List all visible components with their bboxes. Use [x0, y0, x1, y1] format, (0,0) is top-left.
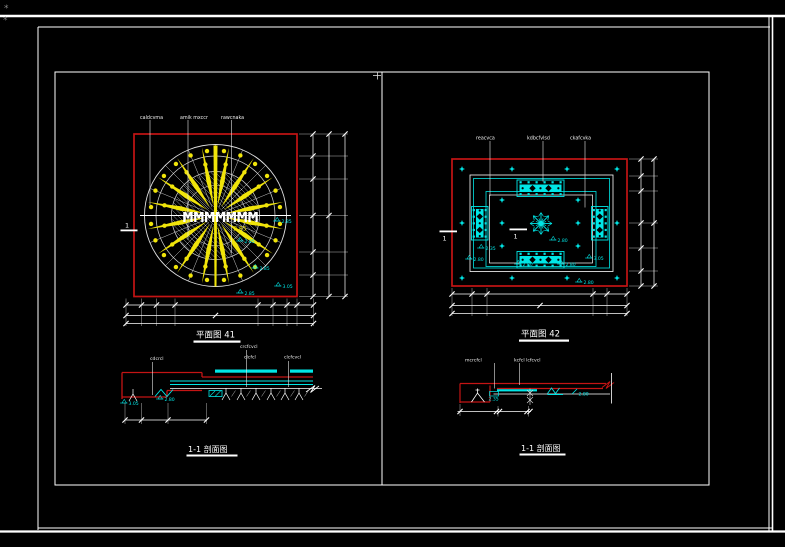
ornament-dot	[522, 187, 524, 189]
ceiling-dot	[184, 257, 188, 261]
ornament-dot	[605, 236, 607, 238]
section-b-panel-bar	[497, 389, 537, 391]
material-callout: caldcvma	[140, 115, 163, 121]
ceiling-dot	[170, 184, 174, 188]
star-mark	[564, 275, 570, 281]
material-callout: kdbcfvlsd	[527, 136, 550, 142]
ornament-dot	[560, 253, 562, 255]
elevation-triangle	[122, 399, 127, 403]
elevation-value: 2.85	[245, 239, 255, 245]
ceiling-dot	[162, 253, 166, 257]
ornament-dot	[520, 193, 522, 195]
elevation-value: 2.85	[245, 291, 255, 297]
elevation-value: 2.80	[558, 238, 568, 244]
hatch-slash	[247, 391, 251, 397]
ornament-dot	[485, 216, 487, 218]
ornament-dot	[473, 222, 475, 224]
ceiling-dot	[257, 184, 261, 188]
star-mark	[614, 275, 620, 281]
ceiling-dot	[278, 205, 282, 209]
corner-artifact-mark: *	[3, 16, 8, 26]
section-a-title-underline	[187, 455, 238, 457]
ceiling-dot	[149, 222, 153, 226]
ornament-dot	[593, 229, 595, 231]
ceiling-dot	[273, 188, 277, 192]
ornament-dot	[605, 216, 607, 218]
hanger-symbol	[222, 388, 230, 400]
star-mark	[614, 166, 620, 172]
ceiling-dot	[265, 253, 269, 257]
elevation-triangle	[479, 244, 484, 248]
elevation-triangle	[587, 254, 592, 258]
ceiling-dot	[162, 203, 166, 207]
cut-marker-label: 1	[514, 233, 518, 241]
ornament-dot	[560, 181, 562, 183]
cad-drawing-canvas: * * 2.852.852.853.052.85 caldcvma amik m…	[0, 0, 785, 547]
ornament-dot	[520, 265, 522, 267]
elevation-triangle	[276, 282, 281, 286]
ornament-dot	[557, 259, 559, 261]
section-a-title: 1-1 剖面图	[188, 444, 228, 454]
ceiling-dot	[162, 174, 166, 178]
ornament-dot	[599, 222, 601, 224]
ceiling-dot	[273, 238, 277, 242]
section-b-generated: 2.352.80	[457, 392, 588, 417]
elevation-value: 2.80	[165, 397, 175, 403]
section-b-hanger	[472, 389, 485, 403]
material-callout: cdcrcl	[150, 356, 164, 362]
star-mark	[614, 220, 620, 226]
plan-a-center-note: 2.85	[233, 226, 247, 233]
plan-b-title: 平面图 42	[521, 330, 560, 340]
cut-marker-bar	[121, 230, 138, 232]
elevation-value: 3.05	[594, 256, 604, 262]
material-callout: clcfcl	[244, 355, 256, 361]
elevation-value: 2.35	[489, 397, 499, 403]
ceiling-dot	[205, 278, 209, 282]
elevation-triangle	[238, 289, 243, 293]
ornament-dot	[560, 265, 562, 267]
material-callout: ckafcvka	[570, 136, 591, 142]
ornament-dot	[536, 253, 538, 255]
ornament-dot	[536, 265, 538, 267]
ornament-dot	[473, 209, 475, 211]
ornament-dot	[560, 193, 562, 195]
ornament-dot	[536, 181, 538, 183]
ornament-dot	[539, 187, 541, 189]
star-mark	[459, 220, 465, 226]
ceiling-dot	[203, 162, 207, 166]
ceiling-dot	[264, 203, 268, 207]
section-a-red-profile	[122, 373, 313, 400]
star-mark	[499, 220, 505, 226]
elevation-value: 2.35	[486, 246, 496, 252]
ceiling-dot	[264, 223, 268, 227]
hanger-symbol	[267, 388, 275, 400]
page-border-frame: * *	[0, 4, 785, 532]
ornament-dot	[485, 209, 487, 211]
ornament-dot	[552, 253, 554, 255]
section-a-hatch	[210, 391, 221, 397]
ornament-dot	[479, 235, 481, 237]
material-callout: crcfcvcl	[240, 344, 258, 350]
hanger-symbol	[281, 388, 289, 400]
plan-a-title-underline	[194, 341, 241, 343]
star-mark	[459, 275, 465, 281]
ornament-dot	[528, 193, 530, 195]
elevation-value: 3.05	[129, 401, 139, 407]
ceiling-dot	[242, 257, 246, 261]
cut-marker-bar	[440, 231, 458, 233]
ornament-dot	[599, 235, 601, 237]
elevation-triangle	[551, 236, 556, 240]
ceiling-dot	[223, 264, 227, 268]
elevation-value: 2.80	[523, 262, 533, 268]
ceiling-dot	[174, 265, 178, 269]
section-b-break-arrow	[602, 382, 614, 389]
hanger-symbol	[129, 389, 137, 401]
ceiling-plan-circular: 2.852.852.853.052.85 caldcvma amik mxccr…	[41, 115, 387, 343]
ornament-dot	[479, 209, 481, 211]
hanger-symbol	[295, 388, 303, 400]
elevation-value: 3.05	[283, 284, 293, 290]
section-a-panel-bar	[215, 370, 277, 373]
ornament-dot	[479, 222, 481, 224]
section-b-title: 1-1 剖面图	[521, 443, 561, 453]
ornament-dot	[593, 216, 595, 218]
elevation-triangle	[275, 217, 280, 221]
elevation-triangle	[467, 255, 472, 259]
ceiling-dot	[222, 278, 226, 282]
material-callout: amik mxccr	[180, 115, 208, 121]
star-mark	[564, 166, 570, 172]
ornament-dot	[528, 253, 530, 255]
material-callout: rawcnaka	[221, 115, 244, 121]
star-mark	[575, 197, 581, 203]
section-b-hanger-rod	[527, 389, 533, 406]
ornament-dot	[557, 187, 559, 189]
elevation-value: 2.85	[260, 266, 270, 272]
ornament-dot	[605, 229, 607, 231]
cut-marker-label: 1	[125, 222, 129, 230]
star-mark	[499, 243, 505, 249]
ornament-dot	[473, 216, 475, 218]
hatch-slash	[277, 391, 281, 397]
material-callout: reacvca	[476, 136, 495, 142]
elevation-value: 2.80	[584, 280, 594, 286]
star-mark	[459, 166, 465, 172]
ceiling-dot	[222, 149, 226, 153]
ornament-dot	[552, 193, 554, 195]
ceiling-dot	[238, 153, 242, 157]
section-b-title-underline	[520, 454, 566, 456]
ornament-dot	[485, 236, 487, 238]
ornament-dot	[544, 253, 546, 255]
section-b-slash	[572, 389, 577, 394]
ceiling-dot	[253, 162, 257, 166]
ornament-dot	[522, 259, 524, 261]
material-callout: clcfcvcl	[284, 355, 301, 361]
star-mark	[499, 197, 505, 203]
star-mark	[575, 220, 581, 226]
elevation-value: 2.80	[579, 392, 589, 398]
star-mark	[509, 275, 515, 281]
ceiling-dot	[170, 242, 174, 246]
ornament-dot	[520, 181, 522, 183]
ornament-dot	[593, 209, 595, 211]
corner-artifact-mark: *	[4, 4, 9, 14]
elevation-value: 2.80	[566, 262, 576, 268]
ceiling-dot	[242, 170, 246, 174]
ceiling-dot	[265, 174, 269, 178]
ceiling-dot	[174, 162, 178, 166]
ornament-dot	[605, 209, 607, 211]
ornament-dot	[552, 181, 554, 183]
elevation-value: 2.80	[474, 257, 484, 263]
ornament-dot	[605, 222, 607, 224]
ornament-dot	[473, 229, 475, 231]
star-mark	[509, 166, 515, 172]
ceiling-dot	[153, 188, 157, 192]
plan-a-center-text: MMMMMMM	[183, 211, 259, 226]
ornament-dot	[593, 222, 595, 224]
hatch-slash	[262, 391, 266, 397]
section-detail-a: cdcrcl crcfcvcl clcfcl clcfcvcl 2.803.05…	[120, 344, 322, 457]
material-callout: mcrcfcl	[465, 358, 482, 364]
material-callout: kcfcl lcfcvcl	[514, 358, 541, 364]
ornament-dot	[552, 265, 554, 267]
ceiling-dot	[238, 273, 242, 277]
ornament-dot	[544, 265, 546, 267]
ceiling-dot	[203, 264, 207, 268]
ceiling-dot	[257, 242, 261, 246]
ceiling-plan-rectangular: 2.802.352.802.802.803.052.80 reacvca kdb…	[440, 136, 659, 342]
elevation-value: 2.85	[282, 219, 292, 225]
ornament-dot	[520, 253, 522, 255]
ornament-dot	[528, 181, 530, 183]
ornament-dot	[473, 236, 475, 238]
section-a-panel-bar	[290, 370, 313, 373]
ornament-dot	[599, 209, 601, 211]
ceiling-dot	[162, 223, 166, 227]
plan-a-title: 平面图 41	[196, 331, 235, 341]
ceiling-dot	[188, 273, 192, 277]
ceiling-dot	[205, 149, 209, 153]
hanger-symbol	[237, 388, 245, 400]
plan-b-title-underline	[519, 340, 569, 342]
ornament-dot	[544, 193, 546, 195]
section-detail-b: mcrcfcl kcfcl lcfcvcl 2.352.80 1-1 剖面图	[457, 358, 614, 456]
ornament-dot	[544, 181, 546, 183]
ornament-dot	[539, 259, 541, 261]
ceiling-dot	[149, 205, 153, 209]
ornament-dot	[536, 193, 538, 195]
ceiling-dot	[223, 162, 227, 166]
section-a-generated: 2.803.05	[120, 388, 309, 424]
cut-marker-bar	[510, 229, 528, 231]
ceiling-dot	[153, 238, 157, 242]
star-mark	[575, 243, 581, 249]
ornament-dot	[485, 222, 487, 224]
hatch-slash	[291, 391, 295, 397]
ornament-dot	[593, 236, 595, 238]
ceiling-dot	[188, 153, 192, 157]
hanger-symbol	[252, 388, 260, 400]
ornament-dot	[485, 229, 487, 231]
elevation-triangle	[577, 278, 582, 282]
cut-marker-label: 1	[443, 235, 447, 243]
hatch-slash	[232, 391, 236, 397]
